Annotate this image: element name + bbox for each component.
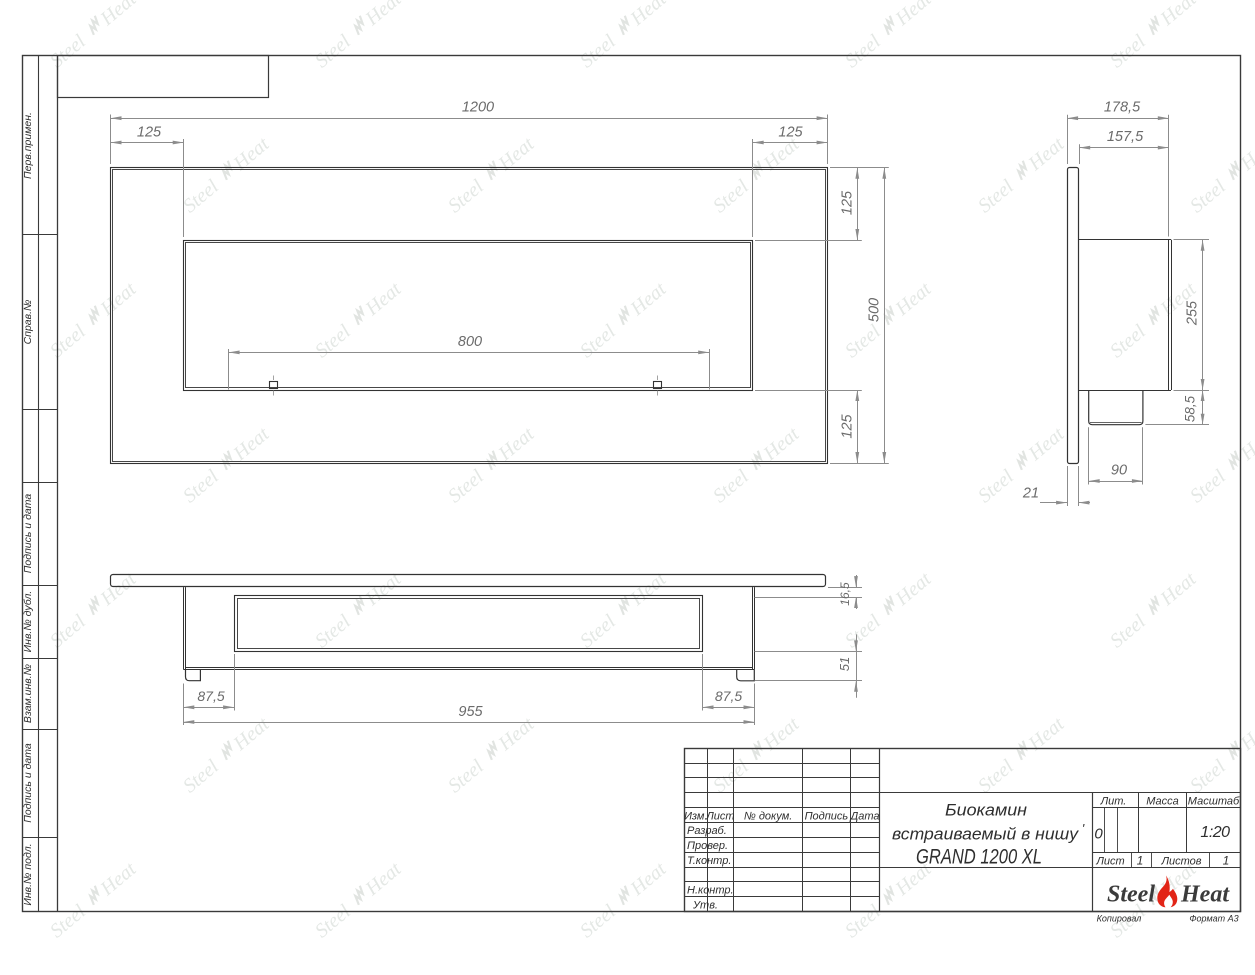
svg-text:955: 955 xyxy=(458,704,483,720)
svg-text:157,5: 157,5 xyxy=(1107,129,1144,145)
svg-text:Изм.: Изм. xyxy=(684,811,707,823)
svg-text:125: 125 xyxy=(840,413,856,438)
svg-text:178,5: 178,5 xyxy=(1104,100,1141,116)
svg-text:Биокамин: Биокамин xyxy=(945,801,1028,820)
svg-text:Steel: Steel xyxy=(1107,882,1155,908)
svg-text:Лист: Лист xyxy=(1095,856,1124,868)
svg-text:16,5: 16,5 xyxy=(838,582,852,606)
svg-text:Формат А3: Формат А3 xyxy=(1189,914,1238,924)
svg-text:800: 800 xyxy=(458,334,482,350)
svg-text:Heat: Heat xyxy=(1180,882,1230,908)
svg-text:Копировал: Копировал xyxy=(1097,914,1142,924)
svg-text:51: 51 xyxy=(837,657,852,671)
svg-text:21: 21 xyxy=(1022,486,1039,502)
svg-text:Справ.№: Справ.№ xyxy=(22,300,34,345)
svg-text:GRAND 1200 XL: GRAND 1200 XL xyxy=(916,846,1042,869)
svg-text:Подпись и дата: Подпись и дата xyxy=(22,494,34,574)
svg-text:1: 1 xyxy=(1137,854,1144,868)
svg-text:Подпись: Подпись xyxy=(805,811,849,823)
svg-text:Т.контр.: Т.контр. xyxy=(687,855,731,867)
svg-text:Масса: Масса xyxy=(1146,796,1179,808)
svg-text:1200: 1200 xyxy=(462,100,494,116)
svg-text:125: 125 xyxy=(840,190,856,215)
svg-text:87,5: 87,5 xyxy=(197,688,224,704)
svg-text:Подпись и дата: Подпись и дата xyxy=(22,743,34,823)
svg-text:Разраб.: Разраб. xyxy=(687,825,727,837)
svg-text:Листов: Листов xyxy=(1160,856,1201,868)
svg-text:58,5: 58,5 xyxy=(1183,395,1198,422)
svg-text:Взам.инв.№: Взам.инв.№ xyxy=(22,664,34,723)
svg-text:1: 1 xyxy=(1223,854,1230,868)
svg-text:255: 255 xyxy=(1184,300,1200,326)
svg-text:Инв.№ дубл.: Инв.№ дубл. xyxy=(22,591,34,653)
svg-text:Дата: Дата xyxy=(848,811,879,823)
svg-text:Инв.№ подл.: Инв.№ подл. xyxy=(22,843,34,905)
svg-text:90: 90 xyxy=(1111,463,1127,479)
svg-text:0: 0 xyxy=(1094,826,1103,843)
svg-text:87,5: 87,5 xyxy=(715,688,742,704)
svg-text:1:20: 1:20 xyxy=(1200,824,1230,841)
svg-text:Лит.: Лит. xyxy=(1100,796,1127,808)
svg-text:Лист: Лист xyxy=(705,811,734,823)
svg-text:№ докум.: № докум. xyxy=(744,811,792,823)
svg-text:Масштаб: Масштаб xyxy=(1188,796,1240,808)
svg-text:125: 125 xyxy=(137,125,162,141)
svg-text:Н.контр.: Н.контр. xyxy=(687,885,734,897)
svg-text:Провер.: Провер. xyxy=(687,840,728,852)
svg-text:Утв.: Утв. xyxy=(692,899,718,911)
svg-text:125: 125 xyxy=(778,125,803,141)
svg-text:500: 500 xyxy=(867,298,883,322)
svg-text:Перв.примен.: Перв.примен. xyxy=(22,112,34,179)
svg-text:встраиваемый в нишу: встраиваемый в нишу xyxy=(892,825,1080,844)
